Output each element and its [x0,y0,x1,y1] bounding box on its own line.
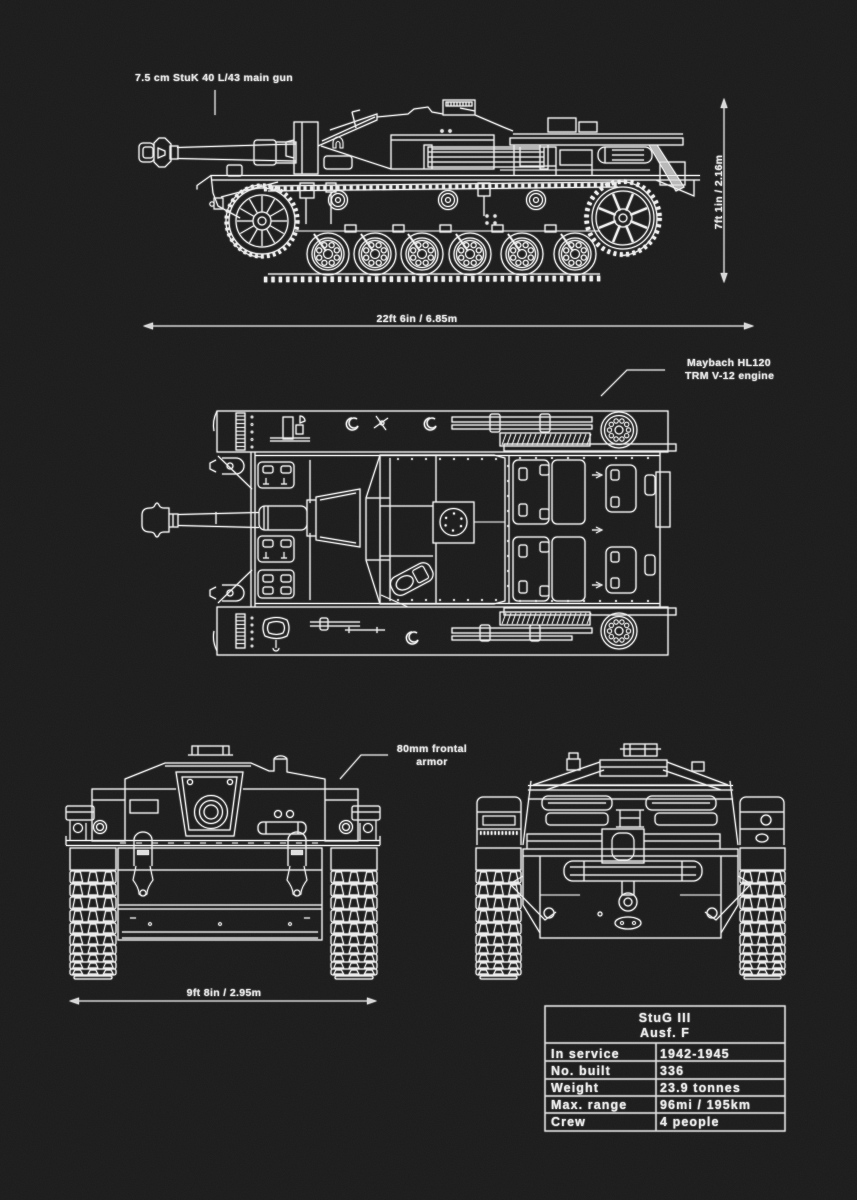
svg-text:No. built: No. built [551,1064,611,1078]
svg-text:1942-1945: 1942-1945 [660,1047,730,1061]
svg-text:Crew: Crew [551,1115,586,1129]
svg-text:7ft 1in / 2.16m: 7ft 1in / 2.16m [713,155,725,230]
svg-text:StuG III: StuG III [639,1011,692,1025]
svg-text:7.5 cm StuK 40 L/43 main gun: 7.5 cm StuK 40 L/43 main gun [135,72,293,84]
svg-text:336: 336 [660,1064,684,1078]
svg-text:96mi / 195km: 96mi / 195km [660,1098,751,1112]
svg-text:Maybach HL120: Maybach HL120 [687,357,771,369]
svg-text:22ft 6in / 6.85m: 22ft 6in / 6.85m [377,313,458,325]
svg-text:Ausf. F: Ausf. F [640,1026,690,1040]
svg-text:80mm frontal: 80mm frontal [397,743,467,755]
svg-text:In service: In service [551,1047,620,1061]
svg-text:Max. range: Max. range [551,1098,627,1112]
svg-text:TRM V-12 engine: TRM V-12 engine [685,370,774,382]
svg-text:4 people: 4 people [660,1115,720,1129]
svg-text:armor: armor [416,756,448,768]
svg-text:23.9 tonnes: 23.9 tonnes [660,1081,741,1095]
svg-text:9ft 8in / 2.95m: 9ft 8in / 2.95m [187,987,262,999]
svg-text:Weight: Weight [551,1081,599,1095]
